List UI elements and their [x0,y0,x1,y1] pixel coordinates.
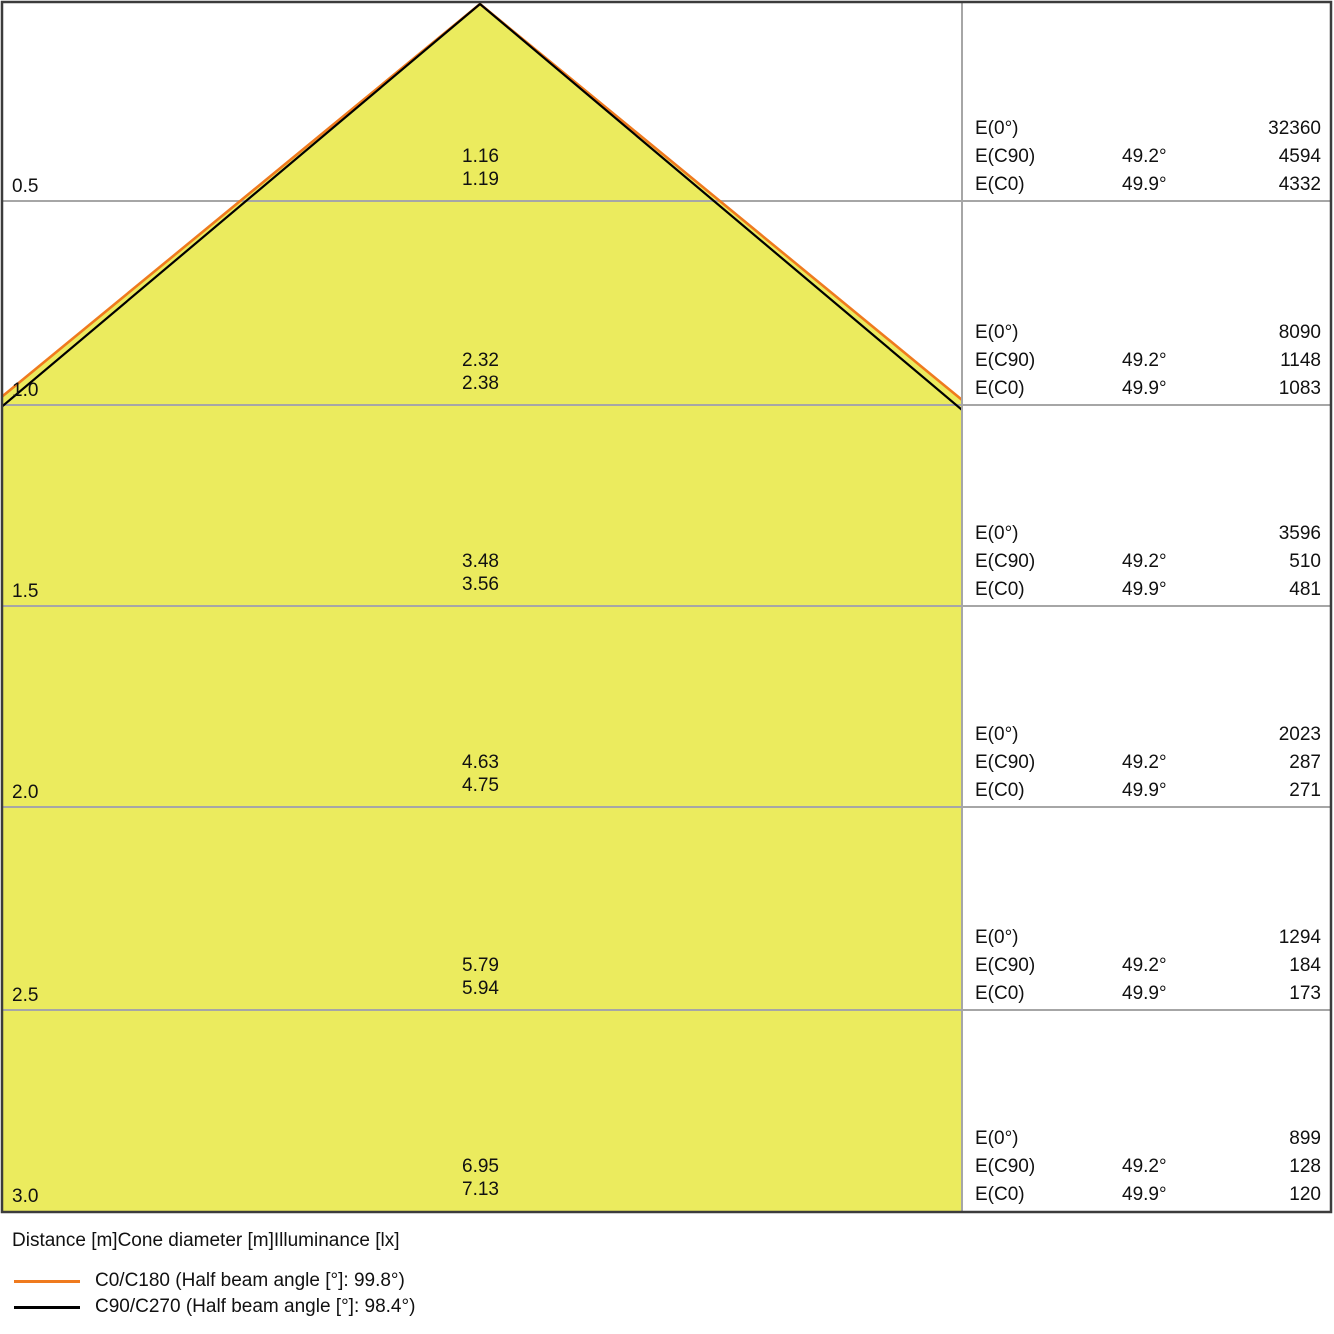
ec0-angle: 49.9° [1122,777,1232,805]
illuminance-block: E(0°)899 E(C90)49.2°128 E(C0)49.9°120 [975,1125,1321,1209]
ec0-value: 271 [1232,777,1321,805]
ec90-value: 184 [1232,952,1321,980]
ec90-label: E(C90) [975,1153,1122,1181]
ec0-value: 4332 [1232,171,1321,199]
e0-angle [1122,1125,1232,1153]
e0-angle [1122,319,1232,347]
cone-diameter-c90: 2.32 [462,349,499,372]
e0-label: E(0°) [975,520,1122,548]
cone-diameter-c90: 4.63 [462,751,499,774]
e0-angle [1122,924,1232,952]
e0-angle [1122,721,1232,749]
cone-diameter-c0: 1.19 [462,168,499,191]
ec0-label: E(C0) [975,777,1122,805]
legend-label-c0: C0/C180 (Half beam angle [°]: 99.8°) [95,1268,405,1294]
ec0-label: E(C0) [975,1181,1122,1209]
ec90-row: E(C90)49.2°510 [975,548,1321,576]
ec0-row: E(C0)49.9°4332 [975,171,1321,199]
illuminance-block: E(0°)32360 E(C90)49.2°4594 E(C0)49.9°433… [975,115,1321,199]
cone-diameter-labels: 1.16 1.19 [462,145,499,191]
cone-diameter-c0: 3.56 [462,573,499,596]
illuminance-block: E(0°)8090 E(C90)49.2°1148 E(C0)49.9°1083 [975,319,1321,403]
cone-diameter-c90: 3.48 [462,550,499,573]
distance-label: 0.5 [12,176,38,198]
distance-label: 2.5 [12,985,38,1007]
cone-diameter-c90: 1.16 [462,145,499,168]
ec90-value: 287 [1232,749,1321,777]
cone-diameter-c90: 5.79 [462,954,499,977]
c90-line-swatch [14,1306,80,1309]
e0-row: E(0°)1294 [975,924,1321,952]
ec90-value: 1148 [1232,347,1321,375]
ec90-label: E(C90) [975,143,1122,171]
ec90-row: E(C90)49.2°128 [975,1153,1321,1181]
ec0-label: E(C0) [975,576,1122,604]
cone-diameter-c0: 2.38 [462,372,499,395]
ec0-value: 1083 [1232,375,1321,403]
distance-label: 2.0 [12,782,38,804]
ec0-angle: 49.9° [1122,171,1232,199]
ec90-angle: 49.2° [1122,347,1232,375]
e0-label: E(0°) [975,1125,1122,1153]
axis-caption: Distance [m]Cone diameter [m]Illuminance… [12,1230,400,1252]
ec0-angle: 49.9° [1122,576,1232,604]
illuminance-block: E(0°)1294 E(C90)49.2°184 E(C0)49.9°173 [975,924,1321,1008]
distance-label: 3.0 [12,1186,38,1208]
e0-row: E(0°)32360 [975,115,1321,143]
cone-diameter-labels: 5.79 5.94 [462,954,499,1000]
ec0-value: 173 [1232,980,1321,1008]
e0-angle [1122,520,1232,548]
e0-value: 32360 [1232,115,1321,143]
e0-row: E(0°)8090 [975,319,1321,347]
ec90-angle: 49.2° [1122,143,1232,171]
ec0-row: E(C0)49.9°120 [975,1181,1321,1209]
ec0-value: 481 [1232,576,1321,604]
illuminance-block: E(0°)2023 E(C90)49.2°287 E(C0)49.9°271 [975,721,1321,805]
e0-label: E(0°) [975,924,1122,952]
distance-label: 1.0 [12,380,38,402]
ec90-value: 128 [1232,1153,1321,1181]
cone-diameter-c0: 7.13 [462,1178,499,1201]
ec90-label: E(C90) [975,749,1122,777]
ec90-row: E(C90)49.2°184 [975,952,1321,980]
ec90-row: E(C90)49.2°287 [975,749,1321,777]
light-cone-diagram: 0.5 1.0 1.5 2.0 2.5 3.0 1.16 1.19 2.32 2… [0,0,1334,1334]
e0-label: E(0°) [975,115,1122,143]
ec90-angle: 49.2° [1122,548,1232,576]
ec90-label: E(C90) [975,548,1122,576]
ec0-label: E(C0) [975,171,1122,199]
ec0-value: 120 [1232,1181,1321,1209]
legend-item-c90: C90/C270 (Half beam angle [°]: 98.4°) [14,1294,415,1320]
cone-diameter-c90: 6.95 [462,1155,499,1178]
cone-diameter-c0: 5.94 [462,977,499,1000]
cone-diameter-labels: 4.63 4.75 [462,751,499,797]
illuminance-block: E(0°)3596 E(C90)49.2°510 E(C0)49.9°481 [975,520,1321,604]
ec0-row: E(C0)49.9°481 [975,576,1321,604]
c0-line-swatch [14,1280,80,1283]
cone-diameter-labels: 6.95 7.13 [462,1155,499,1201]
legend-item-c0: C0/C180 (Half beam angle [°]: 99.8°) [14,1268,405,1294]
e0-value: 1294 [1232,924,1321,952]
cone-diameter-labels: 3.48 3.56 [462,550,499,596]
ec0-angle: 49.9° [1122,375,1232,403]
legend-label-c90: C90/C270 (Half beam angle [°]: 98.4°) [95,1294,415,1320]
ec90-label: E(C90) [975,952,1122,980]
ec0-label: E(C0) [975,980,1122,1008]
ec90-value: 510 [1232,548,1321,576]
ec90-row: E(C90)49.2°1148 [975,347,1321,375]
ec90-value: 4594 [1232,143,1321,171]
e0-label: E(0°) [975,319,1122,347]
ec90-row: E(C90)49.2°4594 [975,143,1321,171]
ec0-row: E(C0)49.9°271 [975,777,1321,805]
cone-diameter-c0: 4.75 [462,774,499,797]
cone-diameter-labels: 2.32 2.38 [462,349,499,395]
ec90-label: E(C90) [975,347,1122,375]
e0-row: E(0°)899 [975,1125,1321,1153]
e0-row: E(0°)2023 [975,721,1321,749]
ec90-angle: 49.2° [1122,749,1232,777]
e0-value: 2023 [1232,721,1321,749]
ec90-angle: 49.2° [1122,1153,1232,1181]
e0-row: E(0°)3596 [975,520,1321,548]
e0-value: 8090 [1232,319,1321,347]
ec0-row: E(C0)49.9°173 [975,980,1321,1008]
e0-angle [1122,115,1232,143]
ec90-angle: 49.2° [1122,952,1232,980]
ec0-label: E(C0) [975,375,1122,403]
distance-label: 1.5 [12,581,38,603]
ec0-angle: 49.9° [1122,980,1232,1008]
e0-label: E(0°) [975,721,1122,749]
ec0-angle: 49.9° [1122,1181,1232,1209]
e0-value: 3596 [1232,520,1321,548]
e0-value: 899 [1232,1125,1321,1153]
ec0-row: E(C0)49.9°1083 [975,375,1321,403]
